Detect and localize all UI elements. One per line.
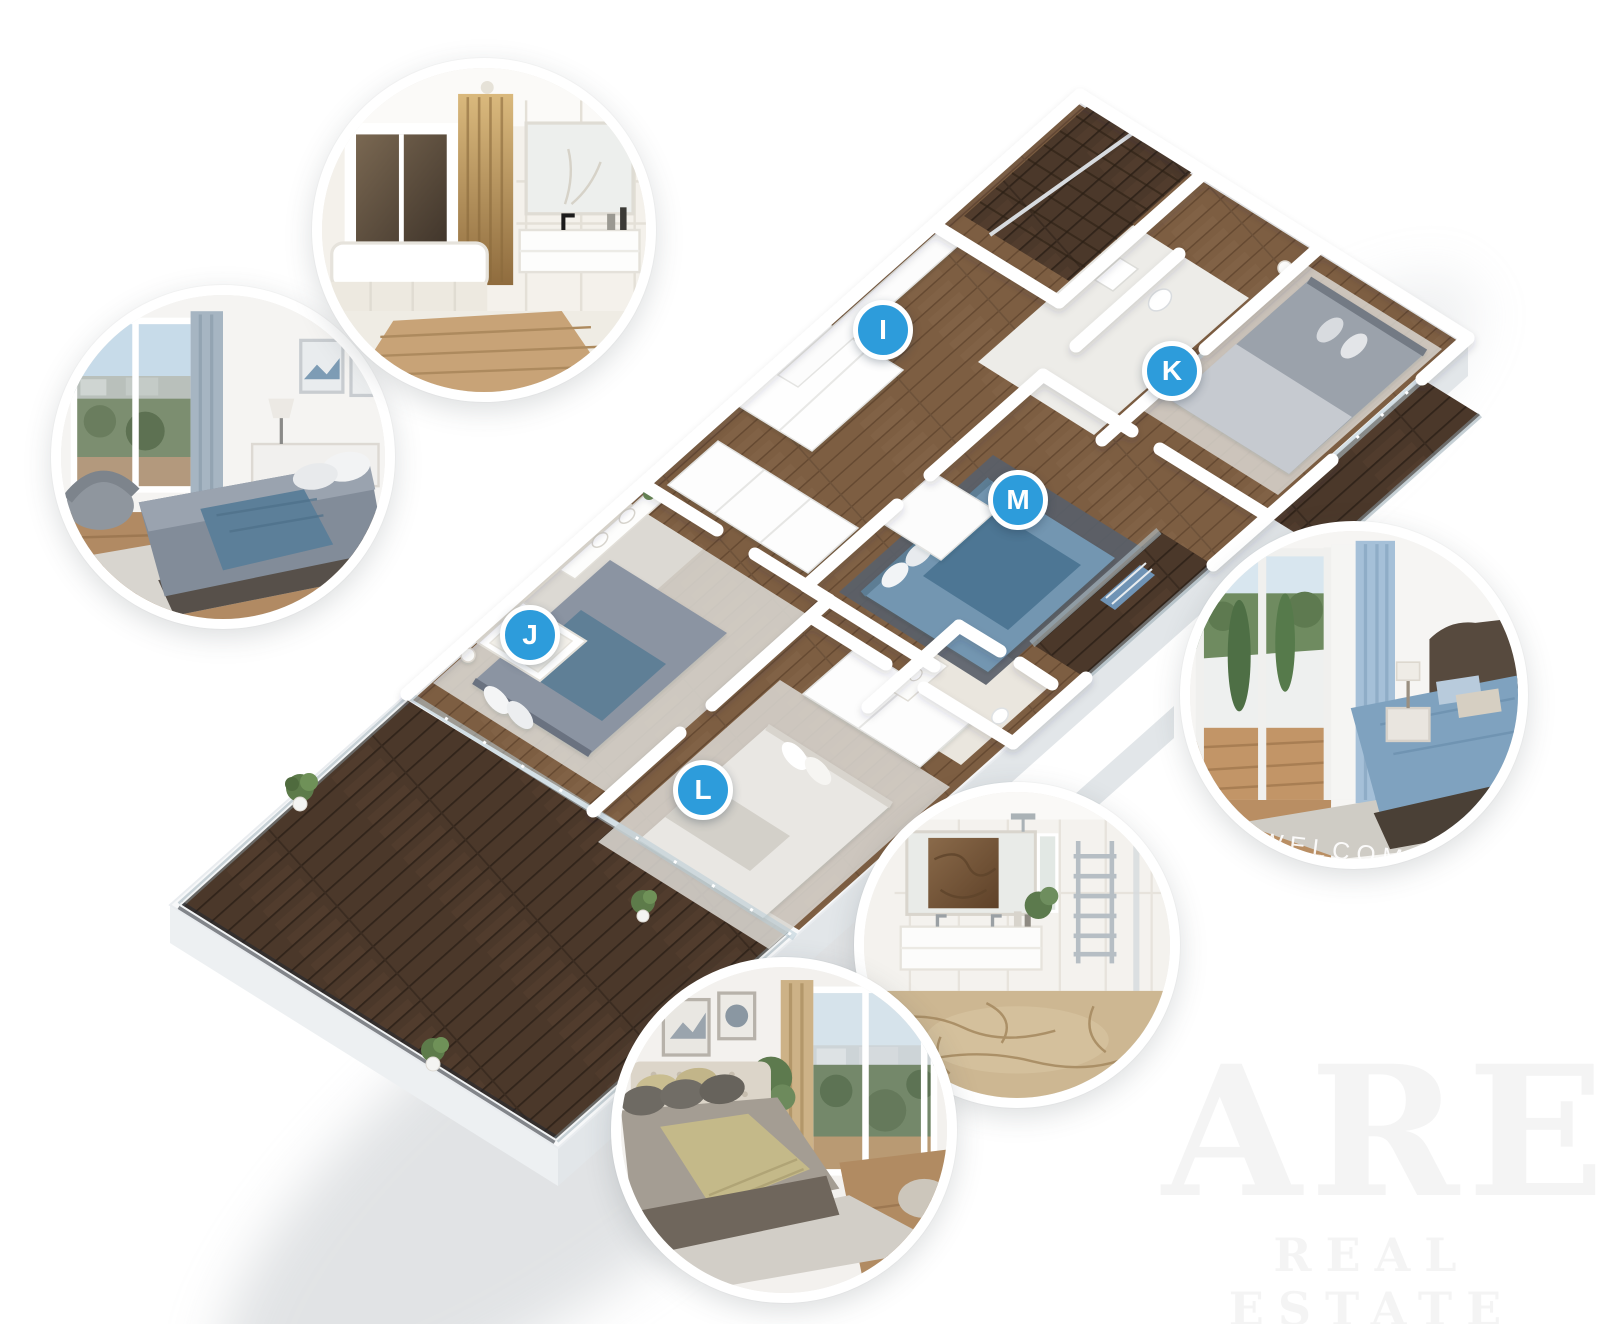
bathroom-ensuite-scene (322, 68, 646, 392)
bedroom-terrace-photo: WELCOME (1180, 521, 1528, 869)
bedroom-hillview-scene (621, 967, 947, 1293)
marker-k-label: K (1162, 355, 1182, 386)
bedroom-balcony-photo (51, 285, 395, 629)
marker-l[interactable]: L (673, 760, 733, 820)
marker-k[interactable]: K (1142, 341, 1202, 401)
marker-i-label: I (879, 314, 887, 345)
marker-i[interactable]: I (853, 300, 913, 360)
marker-l-label: L (694, 774, 711, 805)
marker-j-label: J (522, 619, 538, 650)
bedroom-hill-view-photo (611, 957, 957, 1303)
marker-m[interactable]: M (988, 470, 1048, 530)
floorplan-page: WELCOME (0, 0, 1600, 1324)
bedroom-balcony-scene (61, 295, 385, 619)
bedroom-terrace-scene: WELCOME (1190, 531, 1518, 859)
bathroom-ensuite-photo (312, 58, 656, 402)
marker-j[interactable]: J (500, 605, 560, 665)
marker-m-label: M (1006, 484, 1029, 515)
